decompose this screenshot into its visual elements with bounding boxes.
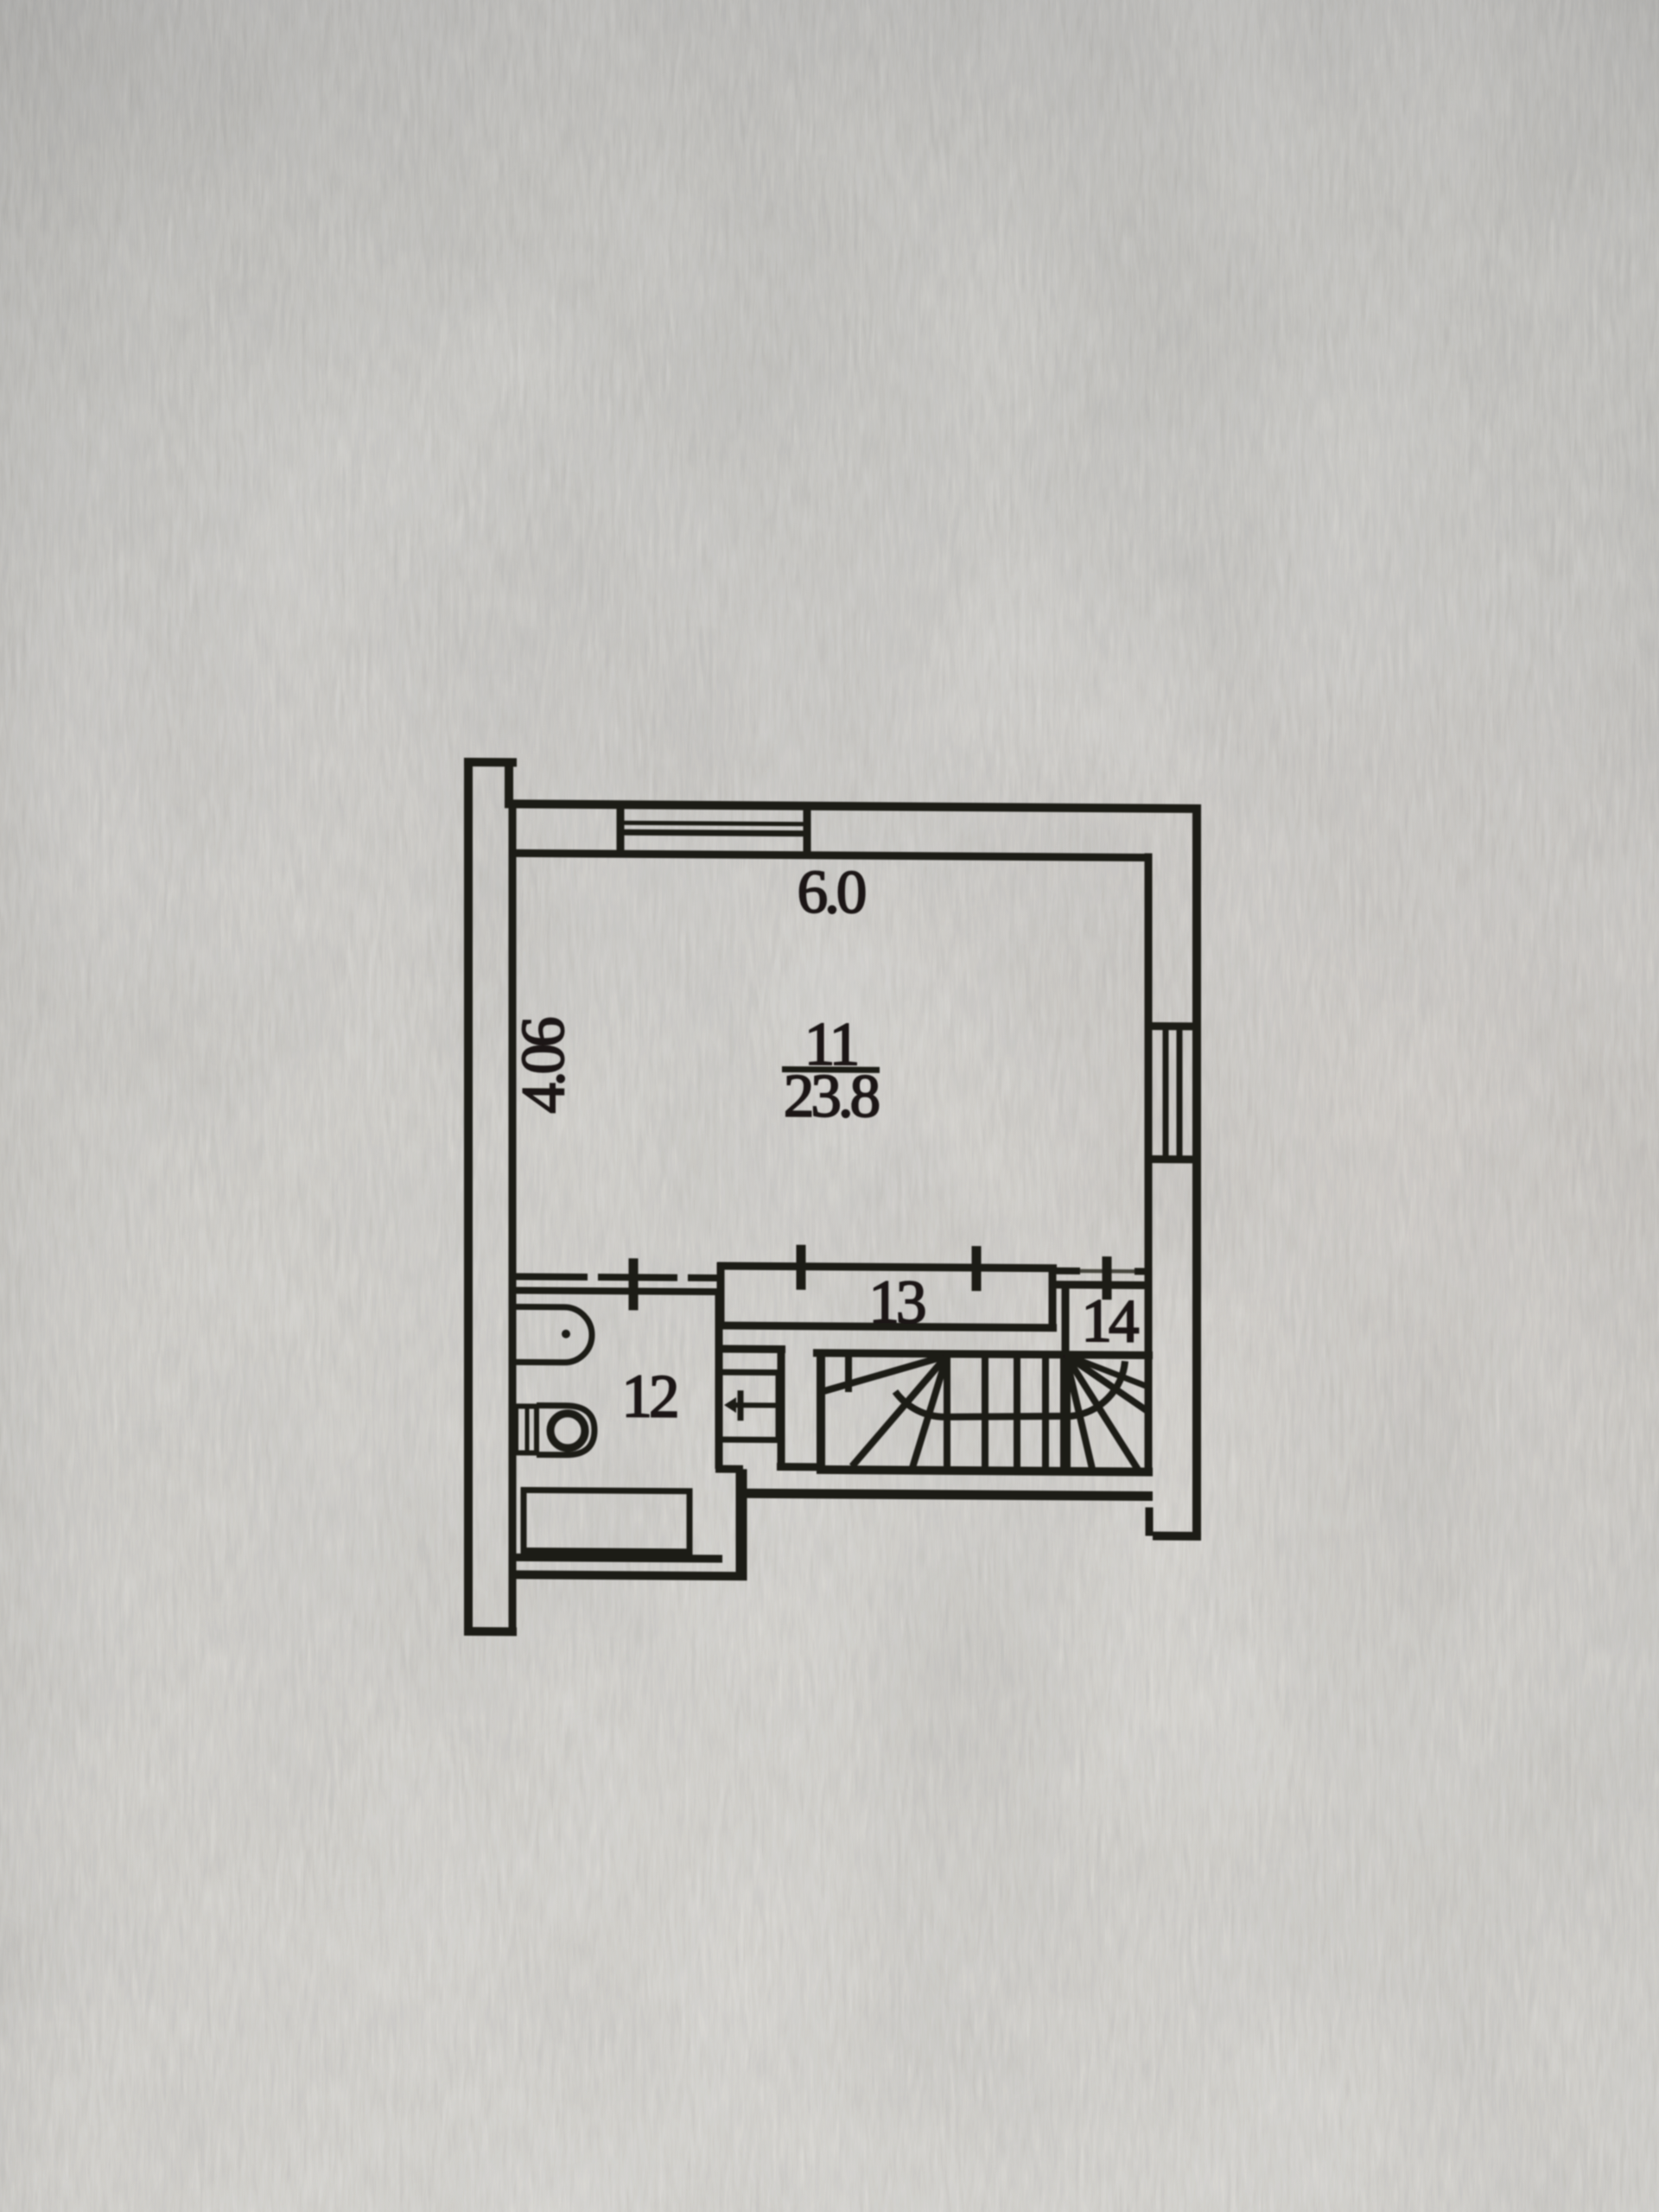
svg-text:4.06: 4.06 <box>510 1018 577 1114</box>
svg-text:13: 13 <box>869 1268 925 1336</box>
svg-text:14: 14 <box>1082 1287 1139 1355</box>
svg-text:12: 12 <box>622 1363 677 1430</box>
svg-text:6.0: 6.0 <box>798 859 865 927</box>
